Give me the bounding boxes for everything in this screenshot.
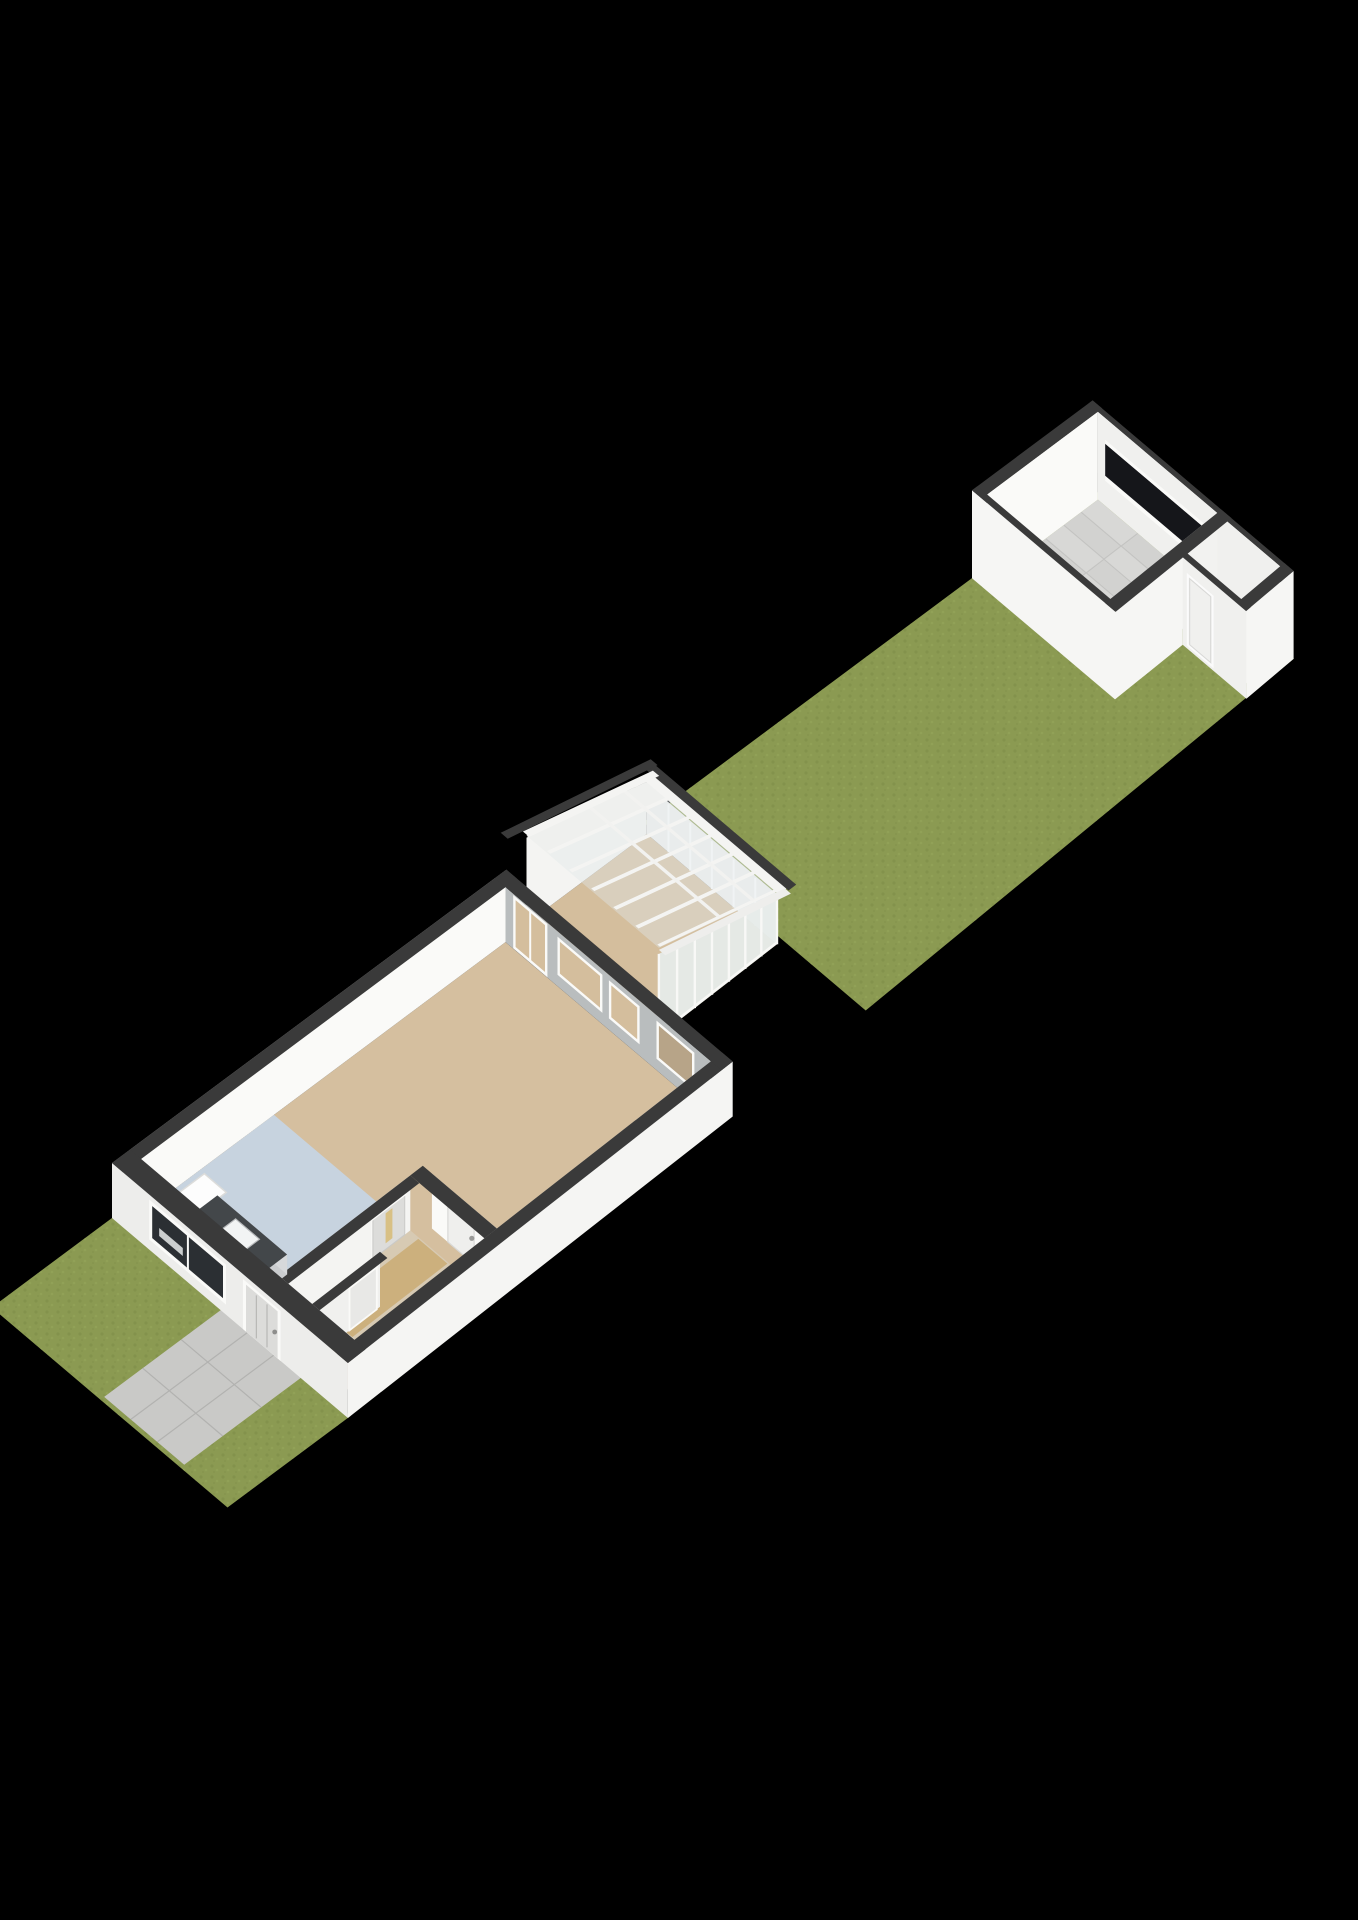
living-room-door-handle xyxy=(469,1236,474,1241)
floorplan-3d-stage xyxy=(0,0,1358,1920)
front-door-handle xyxy=(272,1330,277,1335)
hall-door-glass-slit xyxy=(386,1208,393,1243)
floorplan-3d-view xyxy=(0,0,1358,1920)
